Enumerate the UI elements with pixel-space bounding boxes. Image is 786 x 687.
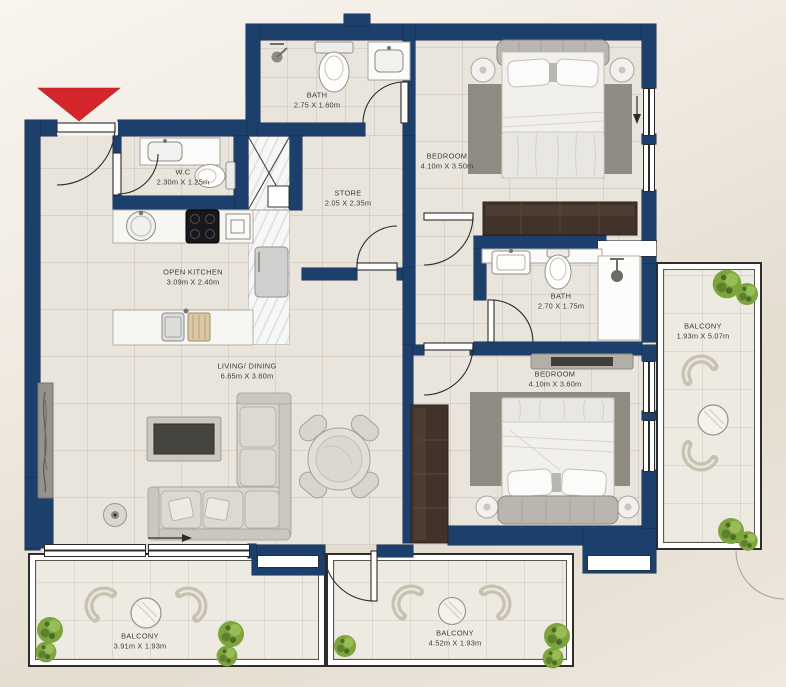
- fridge-icon: [255, 247, 288, 297]
- room-name: BATH: [538, 291, 584, 301]
- room-label-balcony-right: BALCONY 1.93m X 5.07m: [677, 321, 730, 340]
- bath2-door-arc: [491, 300, 533, 342]
- room-name: W.C: [157, 167, 210, 177]
- dining-table: [296, 411, 383, 501]
- sofa: [148, 393, 291, 540]
- store-door-leaf: [357, 263, 397, 270]
- room-name: LIVING/ DINING: [217, 361, 276, 371]
- cooktop-icon: [186, 210, 219, 243]
- balcony2-door-arc: [324, 551, 374, 601]
- room-label-bedroom-1: BEDROOM 4.10m X 3.50m: [421, 151, 474, 170]
- neighbor-door-arc: [736, 551, 784, 599]
- room-name: BATH: [294, 90, 340, 100]
- sink-icon: [368, 42, 410, 80]
- room-dims: 2.05 X 2.35m: [325, 198, 371, 208]
- bedroom2-door-leaf: [424, 343, 473, 350]
- room-label-bath-2: BATH 2.70 X 1.75m: [538, 291, 584, 310]
- room-dims: 2.75 X 1.60m: [294, 100, 340, 110]
- bedroom2-door-arc: [424, 346, 473, 395]
- room-name: BALCONY: [429, 628, 482, 638]
- room-label-living-dining: LIVING/ DINING 6.65m X 3.60m: [217, 361, 276, 380]
- store-door-arc: [357, 226, 397, 266]
- room-name: BEDROOM: [529, 369, 582, 379]
- room-name: BALCONY: [677, 321, 730, 331]
- room-label-balcony-bottom-center: BALCONY 4.52m X 1.93m: [429, 628, 482, 647]
- room-dims: 3.91m X 1.93m: [114, 641, 167, 651]
- room-label-bedroom-2: BEDROOM 4.10m X 3.60m: [529, 369, 582, 388]
- shower-icon: [270, 44, 287, 63]
- room-label-wc: W.C 2.30m X 1.25m: [157, 167, 210, 186]
- tv-console: [38, 383, 53, 498]
- entrance-marker-icon: [38, 88, 120, 121]
- room-label-open-kitchen: OPEN KITCHEN 3.09m X 2.40m: [163, 267, 223, 286]
- toilet-icon: [315, 42, 353, 92]
- room-dims: 4.10m X 3.60m: [529, 379, 582, 389]
- bedroom1-door-arc: [424, 216, 473, 265]
- room-label-balcony-bottom-left: BALCONY 3.91m X 1.93m: [114, 631, 167, 650]
- kitchen-island: [113, 309, 253, 346]
- wardrobe-bedroom-2: [411, 405, 448, 543]
- bath2-door-leaf: [488, 300, 494, 342]
- room-name: BALCONY: [114, 631, 167, 641]
- dresser-bedroom-2: [531, 354, 633, 369]
- room-name: BEDROOM: [421, 151, 474, 161]
- room-label-store: STORE 2.05 X 2.35m: [325, 188, 371, 207]
- bed-bedroom-1: [468, 40, 634, 178]
- room-dims: 3.09m X 2.40m: [163, 277, 223, 287]
- tv-table: [147, 417, 221, 461]
- entrance-door-leaf: [57, 123, 115, 132]
- floor-lamp-icon: [104, 504, 127, 527]
- room-dims: 2.70 X 1.75m: [538, 301, 584, 311]
- shaft-hatch-icon: [248, 136, 290, 210]
- balcony-right-furniture: [681, 270, 759, 551]
- bedroom1-door-leaf: [424, 213, 473, 220]
- room-label-bath-1: BATH 2.75 X 1.60m: [294, 90, 340, 109]
- microwave-icon: [226, 214, 250, 239]
- balcony2-door-leaf: [371, 551, 377, 601]
- room-dims: 2.30m X 1.25m: [157, 177, 210, 187]
- floorplan-canvas: BATH 2.75 X 1.60m BEDROOM 4.10m X 3.50m …: [0, 0, 786, 687]
- room-dims: 1.93m X 5.07m: [677, 331, 730, 341]
- wardrobe-bedroom-1: [483, 202, 637, 235]
- room-name: OPEN KITCHEN: [163, 267, 223, 277]
- room-dims: 4.52m X 1.93m: [429, 638, 482, 648]
- room-dims: 4.10m X 3.50m: [421, 161, 474, 171]
- bath1-door-leaf: [401, 82, 408, 123]
- sink-icon: [140, 138, 220, 165]
- room-name: STORE: [325, 188, 371, 198]
- bed-bedroom-2: [470, 392, 639, 524]
- entrance-door-arc: [57, 127, 115, 185]
- bath1-door-arc: [363, 82, 404, 123]
- room-dims: 6.65m X 3.60m: [217, 371, 276, 381]
- furniture-layer: [0, 0, 786, 687]
- wc-door-leaf: [113, 153, 121, 195]
- balcony-left-furniture: [36, 585, 244, 666]
- balcony-center-furniture: [334, 583, 570, 668]
